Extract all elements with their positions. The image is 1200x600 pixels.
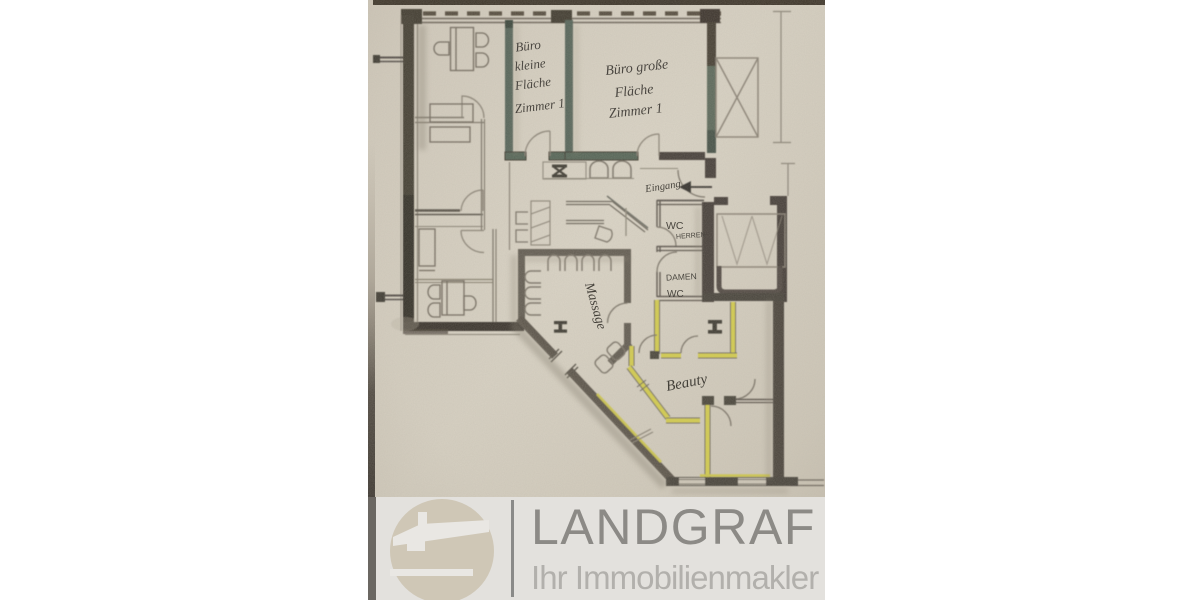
svg-text:Ihr Immobilienmakler: Ihr Immobilienmakler [531,559,819,596]
svg-text:LANDGRAF: LANDGRAF [531,499,816,555]
